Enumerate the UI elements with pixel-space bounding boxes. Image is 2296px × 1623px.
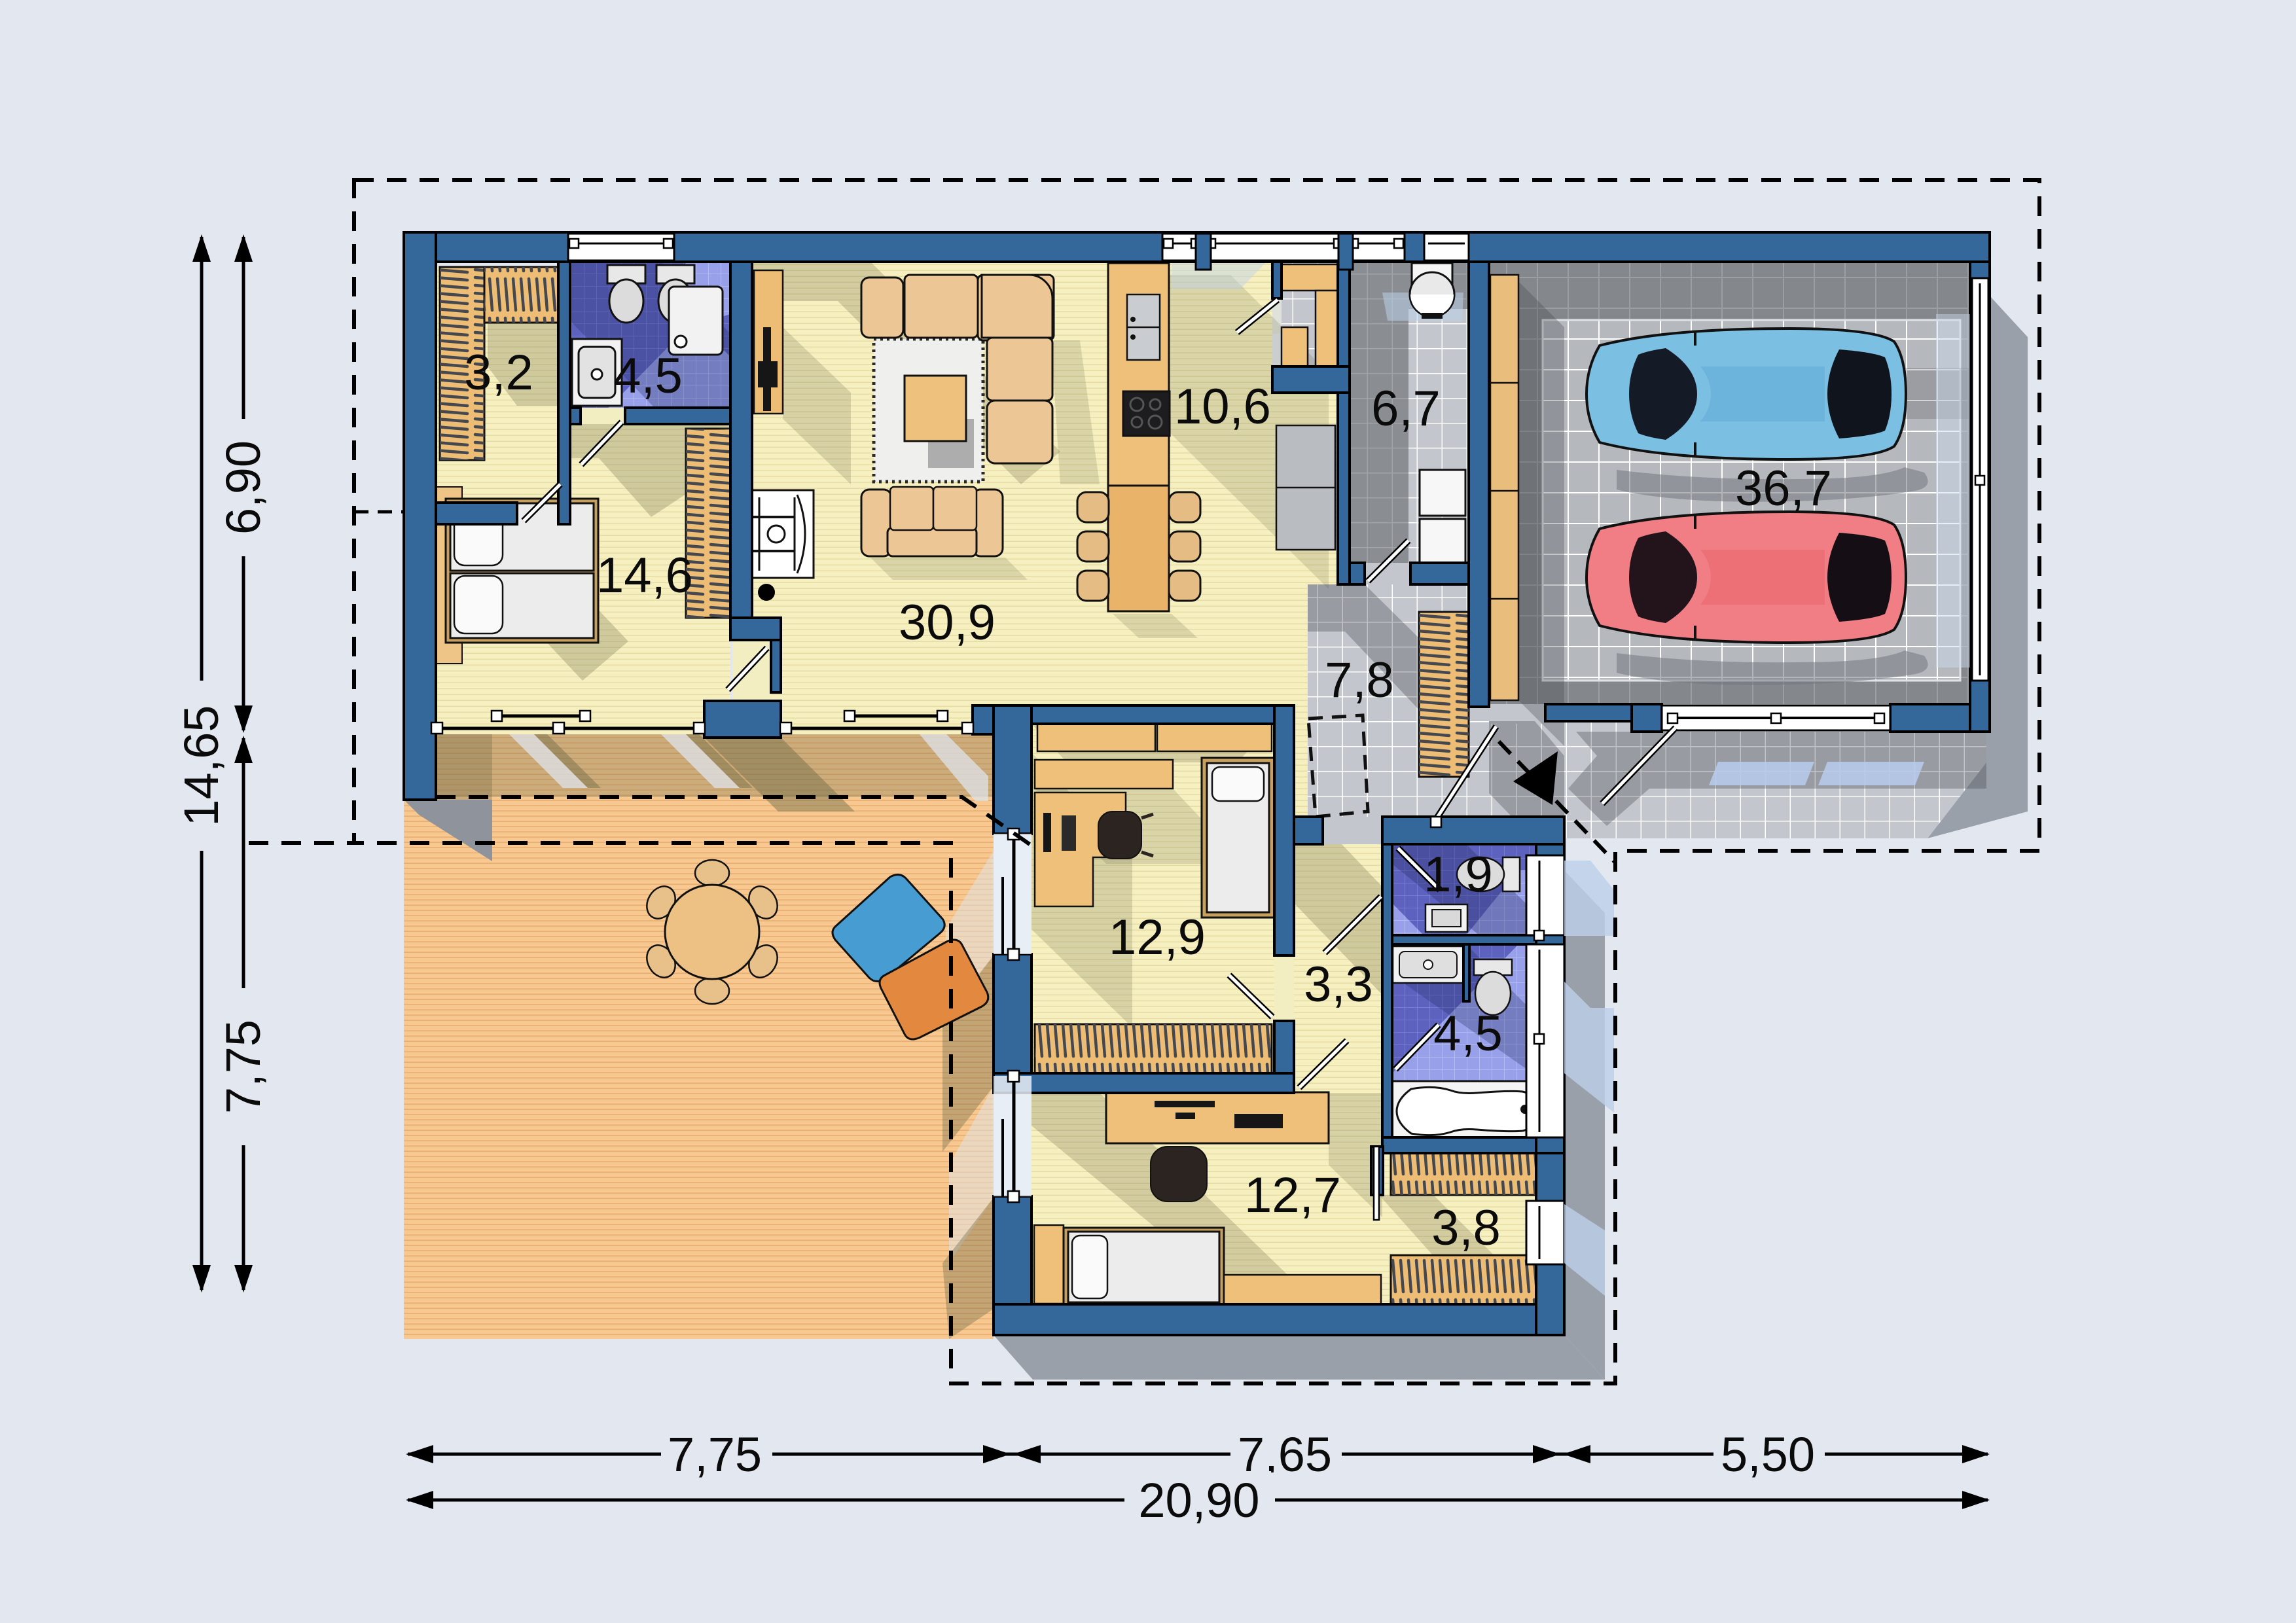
svg-text:30,9: 30,9 [899, 595, 996, 651]
svg-text:7,8: 7,8 [1325, 652, 1394, 708]
svg-text:4,5: 4,5 [613, 348, 683, 404]
svg-text:36,7: 36,7 [1735, 461, 1832, 516]
svg-text:3,8: 3,8 [1431, 1200, 1501, 1256]
svg-text:5,50: 5,50 [1721, 1427, 1815, 1482]
svg-text:1,9: 1,9 [1424, 847, 1493, 902]
svg-text:6,7: 6,7 [1371, 381, 1441, 437]
svg-text:3,2: 3,2 [464, 345, 533, 401]
svg-text:14,6: 14,6 [596, 548, 693, 603]
svg-text:7,75: 7,75 [216, 1020, 270, 1114]
svg-text:12,7: 12,7 [1244, 1168, 1341, 1223]
svg-text:7,75: 7,75 [668, 1427, 762, 1482]
svg-text:12,9: 12,9 [1109, 910, 1206, 965]
svg-text:14,65: 14,65 [174, 705, 228, 826]
svg-text:20,90: 20,90 [1138, 1473, 1259, 1527]
svg-text:6,90: 6,90 [216, 440, 270, 535]
svg-text:4,5: 4,5 [1433, 1006, 1503, 1061]
svg-text:10,6: 10,6 [1174, 379, 1271, 435]
svg-text:3,3: 3,3 [1304, 957, 1373, 1012]
